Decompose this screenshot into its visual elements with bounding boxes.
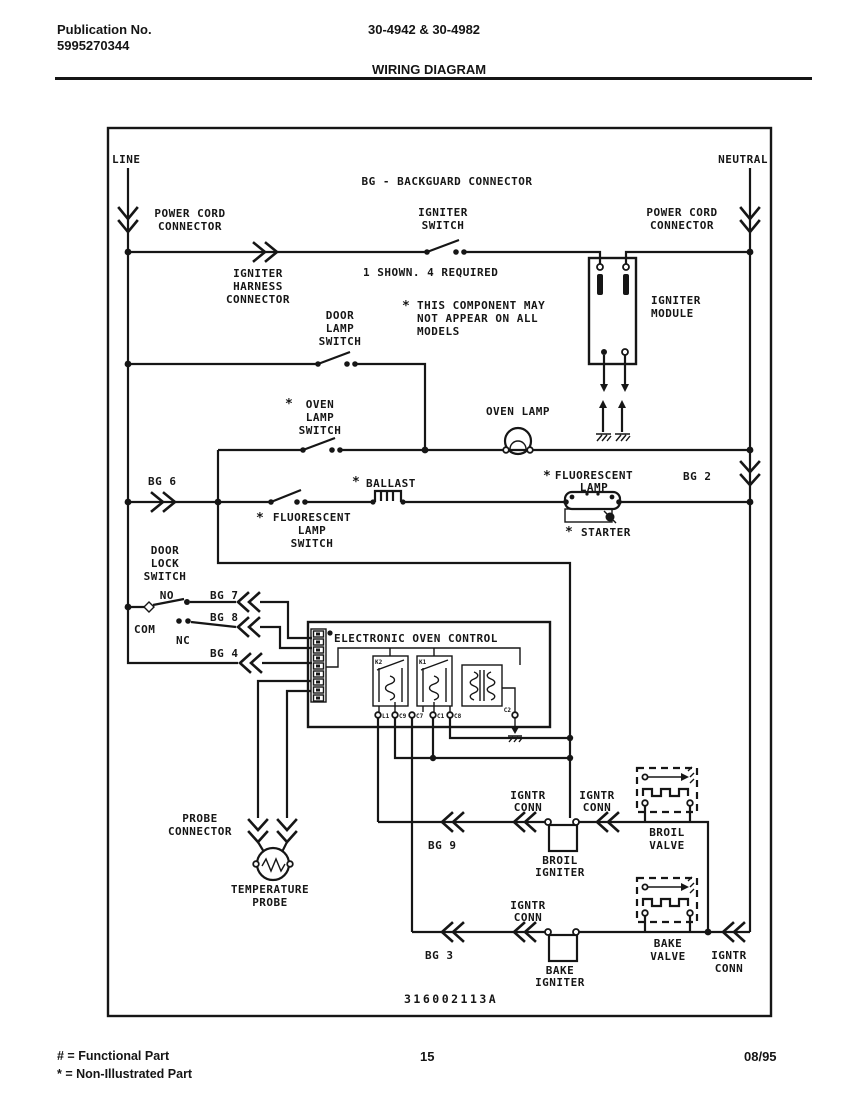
svg-text:NEUTRAL: NEUTRAL <box>718 153 768 166</box>
svg-text:SWITCH: SWITCH <box>422 219 465 232</box>
bg9-label: BG 9 <box>428 839 457 852</box>
fluorescent-circuit: BG 6 * FLUORESCENT LAMP SWITCH * BALLAST… <box>128 462 759 550</box>
eoc-terminals: L1 C9 C7 C1 C8 C2 <box>375 702 522 742</box>
svg-text:SWITCH: SWITCH <box>144 570 187 583</box>
broil-igniter-symbol <box>545 819 579 851</box>
schematic-part-number: 316002113A <box>404 992 498 1006</box>
bake-circuit: BG 3 IGNTR CONN BAKE IGNITER BAKE VALVE <box>412 877 750 989</box>
svg-text:HARNESS: HARNESS <box>233 280 283 293</box>
oven-lamp-circuit: * OVEN LAMP SWITCH OVEN LAMP <box>218 397 750 454</box>
bg3-label: BG 3 <box>425 949 454 962</box>
starter-label: STARTER <box>581 526 631 539</box>
svg-text:MODELS: MODELS <box>417 325 460 338</box>
svg-text:C8: C8 <box>454 713 462 720</box>
svg-text:L1: L1 <box>382 713 390 720</box>
svg-text:POWER CORD: POWER CORD <box>646 206 717 219</box>
svg-text:SWITCH: SWITCH <box>319 335 362 348</box>
svg-text:C1: C1 <box>437 713 445 720</box>
svg-text:K2: K2 <box>375 659 383 666</box>
svg-text:*: * <box>543 469 551 484</box>
svg-text:CONNECTOR: CONNECTOR <box>168 825 232 838</box>
svg-text:*: * <box>285 397 293 412</box>
svg-text:C7: C7 <box>416 713 424 720</box>
power-cord-connector-left-label: POWER CORD CONNECTOR <box>154 207 225 233</box>
svg-text:IGNITER: IGNITER <box>418 206 468 219</box>
nc-label: NC <box>176 634 190 647</box>
svg-text:TEMPERATURE: TEMPERATURE <box>231 883 309 896</box>
svg-text:CONN: CONN <box>715 962 744 975</box>
svg-text:CONN: CONN <box>514 911 543 924</box>
svg-text:IGNITER: IGNITER <box>535 976 585 989</box>
svg-text:CONNECTOR: CONNECTOR <box>650 219 714 232</box>
svg-text:LOCK: LOCK <box>151 557 180 570</box>
eoc-transformer <box>462 665 515 712</box>
manual-page: Publication No. 5995270344 30-4942 & 30-… <box>0 0 864 1104</box>
fluorescent-lamp-symbol <box>563 492 622 509</box>
svg-text:SWITCH: SWITCH <box>291 537 334 550</box>
igniter-switch-symbol: IGNITER SWITCH <box>418 206 468 255</box>
svg-text:K1: K1 <box>419 659 427 666</box>
svg-text:SWITCH: SWITCH <box>299 424 342 437</box>
svg-text:PROBE: PROBE <box>252 896 288 909</box>
svg-text:*: * <box>352 475 360 490</box>
power-cord-connector-right-label: POWER CORD CONNECTOR <box>646 206 717 232</box>
svg-text:POWER CORD: POWER CORD <box>154 207 225 220</box>
svg-text:LAMP: LAMP <box>298 524 327 537</box>
svg-text:CONNECTOR: CONNECTOR <box>158 220 222 233</box>
svg-text:IGNITER: IGNITER <box>651 294 701 307</box>
oven-lamp-label: OVEN LAMP <box>486 405 550 418</box>
backguard-legend: BG - BACKGUARD CONNECTOR <box>362 175 533 188</box>
bg8-label: BG 8 <box>210 611 239 624</box>
svg-text:LAMP: LAMP <box>326 322 355 335</box>
bg7-label: BG 7 <box>210 589 239 602</box>
igniter-circuit-wire <box>128 243 750 264</box>
door-lamp-circuit: DOOR LAMP SWITCH <box>128 309 425 450</box>
svg-text:IGNTR: IGNTR <box>711 949 747 962</box>
broil-valve-symbol <box>637 767 697 822</box>
svg-text:C9: C9 <box>399 713 407 720</box>
starter-symbol <box>565 509 616 523</box>
electronic-oven-control: ELECTRONIC OVEN CONTROL K2 <box>308 622 570 932</box>
svg-text:MODULE: MODULE <box>651 307 694 320</box>
svg-text:CONN: CONN <box>514 801 543 814</box>
svg-text:PROBE: PROBE <box>182 812 218 825</box>
svg-text:CONN: CONN <box>583 801 612 814</box>
svg-text:DOOR: DOOR <box>326 309 355 322</box>
svg-text:BROIL: BROIL <box>649 826 685 839</box>
svg-text:C2: C2 <box>504 707 512 714</box>
svg-text:IGNITER: IGNITER <box>233 267 283 280</box>
svg-text:VALVE: VALVE <box>649 839 685 852</box>
svg-text:LAMP: LAMP <box>306 411 335 424</box>
igniter-harness-connector-label: IGNITER HARNESS CONNECTOR <box>226 267 290 306</box>
svg-text:CONNECTOR: CONNECTOR <box>226 293 290 306</box>
svg-text:*: * <box>402 299 410 314</box>
bake-igniter-symbol <box>545 929 579 961</box>
no-label: NO <box>160 589 174 602</box>
svg-text:LINE: LINE <box>112 153 141 166</box>
eoc-relay-1: K2 <box>373 656 408 706</box>
ballast-label: BALLAST <box>366 477 416 490</box>
igniter-module: IGNITER MODULE <box>589 258 701 441</box>
svg-text:FLUORESCENT: FLUORESCENT <box>273 511 351 524</box>
svg-text:NOT APPEAR ON ALL: NOT APPEAR ON ALL <box>417 312 538 325</box>
wiring-diagram: LINE NEUTRAL BG - BACKGUARD CONNECTOR PO… <box>0 0 864 1104</box>
svg-text:THIS COMPONENT MAY: THIS COMPONENT MAY <box>417 299 545 312</box>
eoc-relay-2: K1 <box>417 656 452 706</box>
svg-text:*: * <box>256 511 264 526</box>
svg-text:DOOR: DOOR <box>151 544 180 557</box>
ballast-symbol <box>370 491 405 505</box>
svg-text:*: * <box>565 525 573 540</box>
neutral-bus: NEUTRAL <box>718 153 768 932</box>
shown-note: 1 SHOWN. 4 REQUIRED <box>363 266 498 279</box>
com-label: COM <box>134 623 155 636</box>
diagram-border <box>108 128 771 1016</box>
svg-text:VALVE: VALVE <box>650 950 686 963</box>
eoc-title: ELECTRONIC OVEN CONTROL <box>334 632 498 645</box>
svg-text:IGNITER: IGNITER <box>535 866 585 879</box>
temperature-probe-circuit: PROBE CONNECTOR TEMPERATURE PROBE <box>168 681 311 909</box>
bg4-label: BG 4 <box>210 647 239 660</box>
svg-text:OVEN: OVEN <box>306 398 335 411</box>
bake-valve-symbol <box>637 877 697 932</box>
eoc-pin-strip <box>311 629 326 702</box>
component-note: * THIS COMPONENT MAY NOT APPEAR ON ALL M… <box>402 299 545 338</box>
bg6-label: BG 6 <box>148 475 177 488</box>
svg-text:BAKE: BAKE <box>654 937 683 950</box>
bg2-label: BG 2 <box>683 470 712 483</box>
